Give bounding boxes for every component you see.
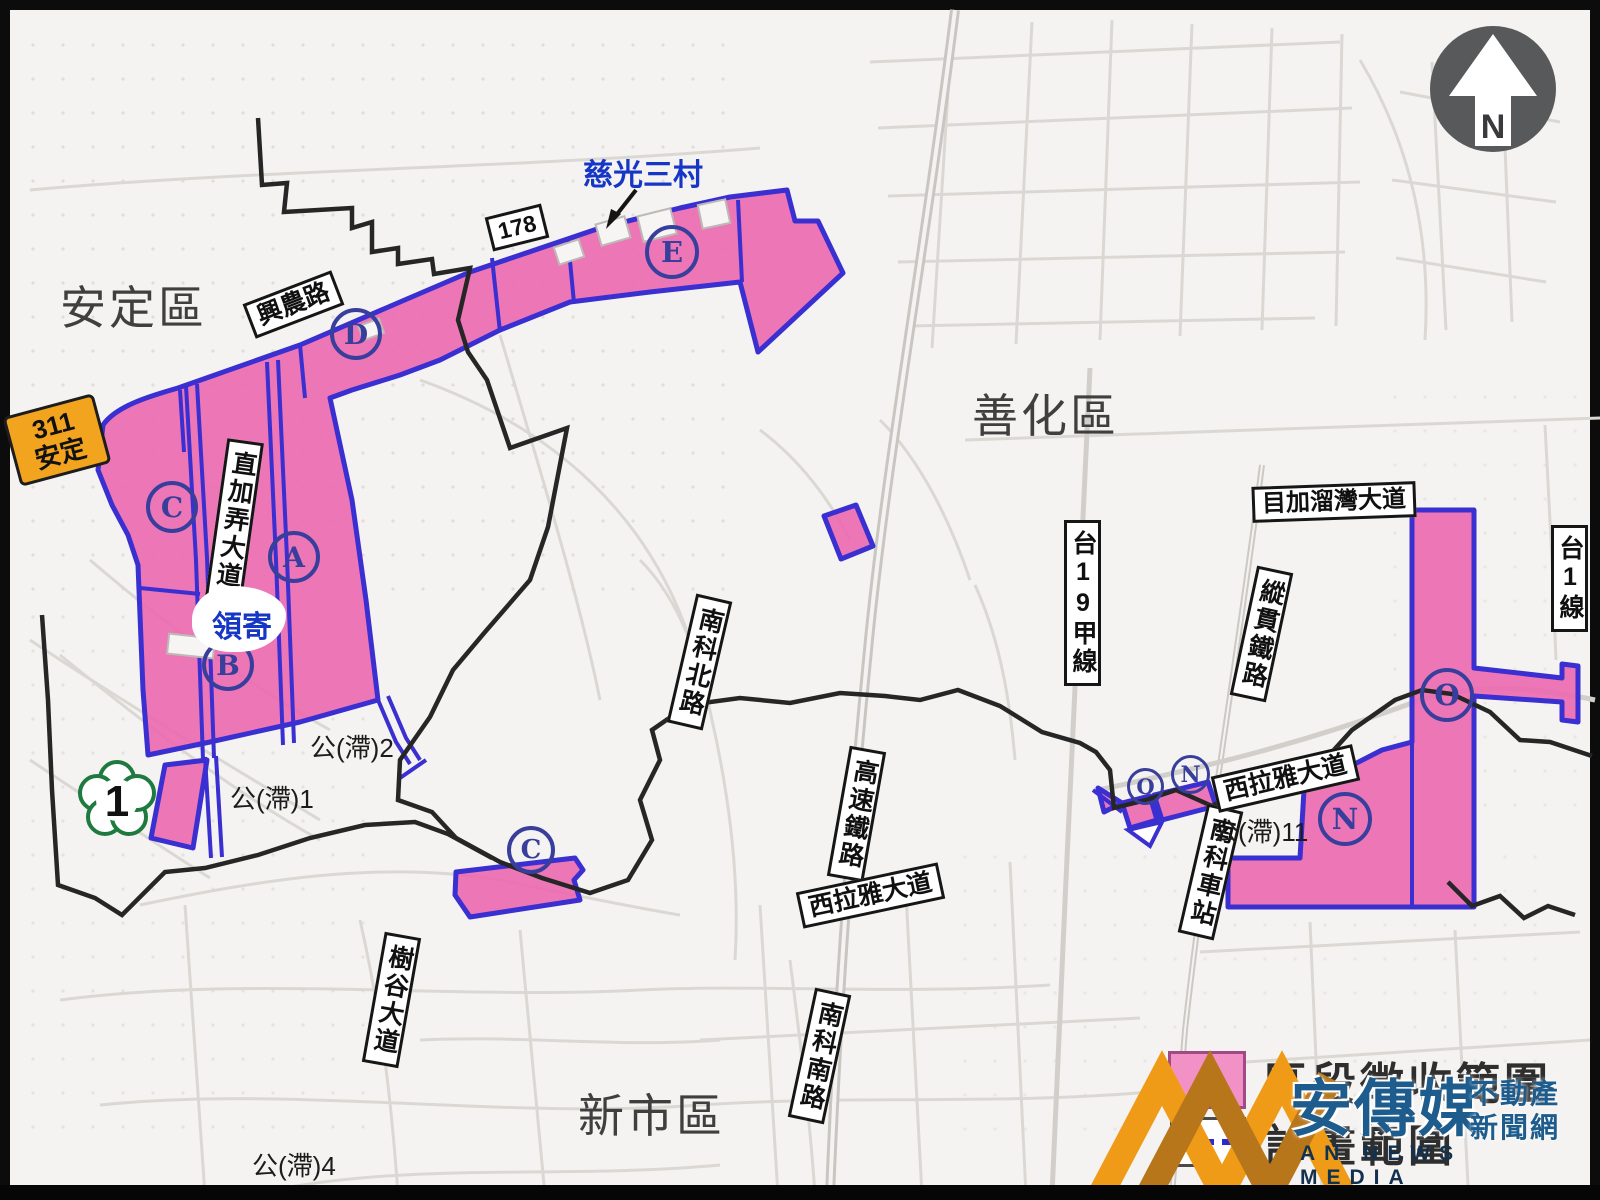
zone-badge-O-small: O xyxy=(1127,768,1164,805)
bottom-frame-bar xyxy=(0,1185,1600,1200)
district-label-shanhua: 善化區 xyxy=(972,380,1119,446)
detention-label-1: 公(滯)1 xyxy=(230,779,314,816)
district-label-anding: 安定區 xyxy=(60,272,207,338)
north-arrow-label: N xyxy=(1481,108,1506,146)
zone-badge-N-east: N xyxy=(1318,792,1372,846)
zone-badge-A: A xyxy=(268,531,320,583)
zone-west-tail xyxy=(151,760,207,848)
zone-badge-C: C xyxy=(146,481,198,533)
poi-label-ciguang-village: 慈光三村 xyxy=(583,150,703,194)
detention-label-11: 公(滯)11 xyxy=(1212,812,1308,849)
zone-badge-C-strip: C xyxy=(507,826,555,874)
road-sign-tai1: 台1線 xyxy=(1551,525,1588,632)
zone-badge-D: D xyxy=(330,308,382,360)
poi-label-lingji: 領寄 xyxy=(212,602,272,646)
north-arrow-icon: N xyxy=(1430,26,1556,152)
district-label-xinshi: 新市區 xyxy=(578,1080,725,1146)
watermark-brand-cn: 安傳媒 xyxy=(1290,1058,1482,1148)
freeway-number: 1 xyxy=(105,777,129,826)
map-canvas: 1 N 安定區 善化區 新市區 興農路 178 直加弄大道 南科北路 高速鐵路 … xyxy=(0,0,1600,1200)
zone-badge-E: E xyxy=(645,225,699,279)
freeway-1-shield: 1 xyxy=(80,762,154,834)
road-sign-tai19jia: 台19甲線 xyxy=(1064,520,1101,686)
zone-small-parallelogram xyxy=(824,505,873,559)
road-sign-mujialiuwan: 目加溜灣大道 xyxy=(1251,481,1416,523)
zone-badge-N-small: N xyxy=(1171,755,1210,794)
zone-badge-O-east: O xyxy=(1420,668,1474,722)
watermark-tagline-2: 新聞網 xyxy=(1470,1106,1560,1146)
detention-label-2: 公(滯)2 xyxy=(310,728,394,765)
watermark-brand-en: AN NEWS MEDIA xyxy=(1300,1142,1588,1190)
detention-label-4: 公(滯)4 xyxy=(252,1146,336,1183)
watermark: 安傳媒 不動產 新聞網 AN NEWS MEDIA xyxy=(1088,1040,1588,1190)
